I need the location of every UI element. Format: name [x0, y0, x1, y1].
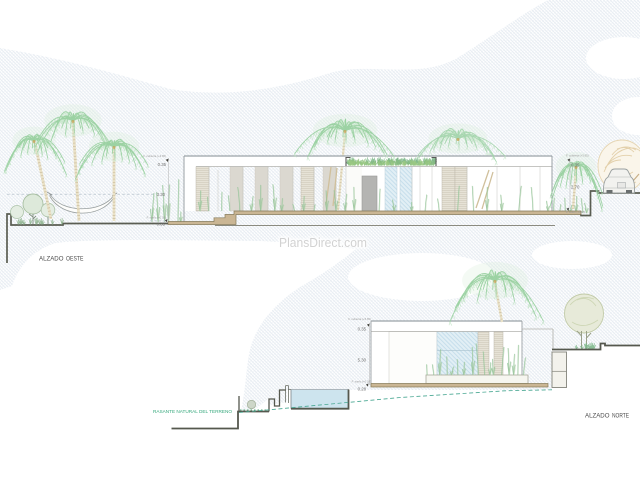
svg-text:F. suelo (+0.35): F. suelo (+0.35) — [147, 216, 166, 220]
svg-text:0.35: 0.35 — [358, 327, 367, 332]
svg-text:F. cubierta (+3.65): F. cubierta (+3.65) — [566, 154, 589, 158]
svg-text:2.70: 2.70 — [571, 185, 580, 190]
svg-text:OESTE: OESTE — [66, 255, 84, 262]
svg-text:NORTE: NORTE — [612, 412, 629, 419]
svg-text:ALZADO: ALZADO — [39, 255, 64, 262]
svg-text:3.30: 3.30 — [157, 192, 166, 197]
svg-text:ALZADO: ALZADO — [585, 412, 610, 419]
svg-text:F. cubierta (+3.65): F. cubierta (+3.65) — [143, 154, 166, 158]
svg-text:0.35: 0.35 — [571, 163, 580, 168]
svg-text:0.35: 0.35 — [158, 162, 167, 167]
svg-text:5.30: 5.30 — [358, 358, 367, 363]
svg-text:F. suelo (+0.28): F. suelo (+0.28) — [352, 380, 371, 384]
svg-text:F. cubierta (+5.65): F. cubierta (+5.65) — [348, 317, 371, 321]
svg-text:0.28: 0.28 — [358, 387, 367, 392]
svg-text:PlansDirect.com: PlansDirect.com — [279, 236, 367, 250]
svg-text:F. suelo (+0.65): F. suelo (+0.65) — [566, 210, 585, 214]
svg-text:RASANTE NATURAL DEL TERRENO: RASANTE NATURAL DEL TERRENO — [153, 409, 233, 414]
svg-text:0.35: 0.35 — [157, 221, 166, 226]
